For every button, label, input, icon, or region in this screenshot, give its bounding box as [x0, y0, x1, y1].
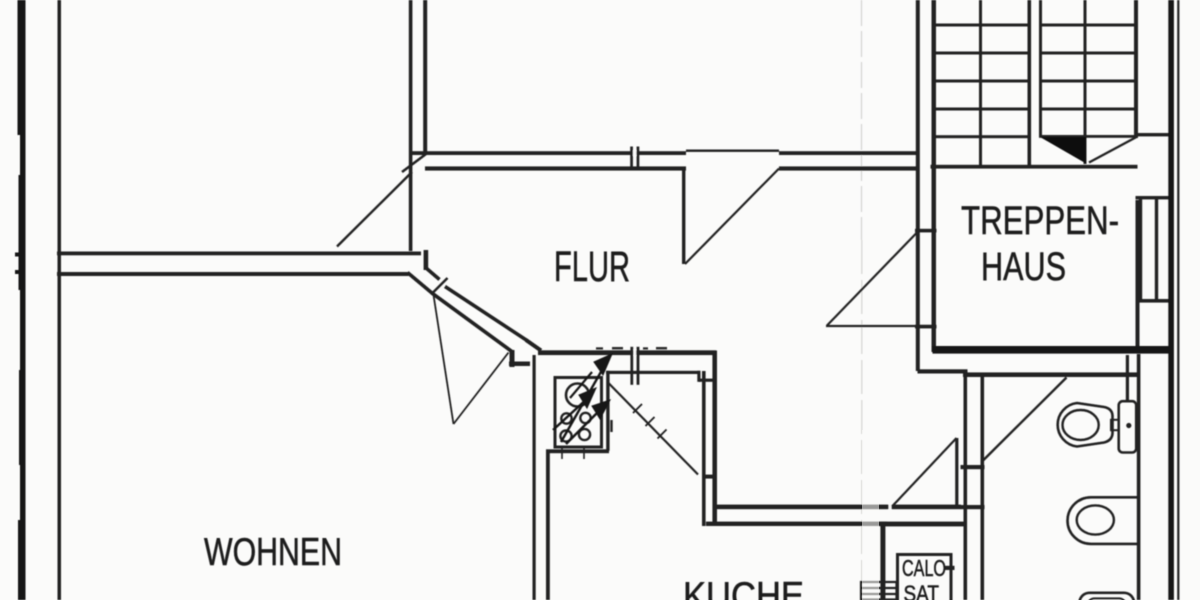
svg-text:SAT: SAT	[904, 581, 940, 600]
svg-text:CALO: CALO	[902, 555, 946, 581]
svg-text:WOHNEN: WOHNEN	[204, 531, 342, 574]
svg-text:TREPPEN-: TREPPEN-	[961, 199, 1119, 243]
svg-text:FLUR: FLUR	[554, 243, 630, 291]
svg-text:KUCHE: KUCHE	[683, 575, 804, 600]
svg-text:HAUS: HAUS	[981, 245, 1066, 289]
